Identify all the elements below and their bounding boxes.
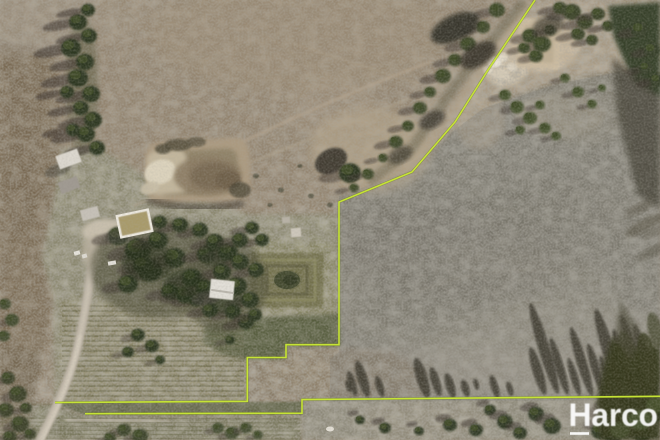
svg-text:Harco: Harco <box>569 397 658 433</box>
